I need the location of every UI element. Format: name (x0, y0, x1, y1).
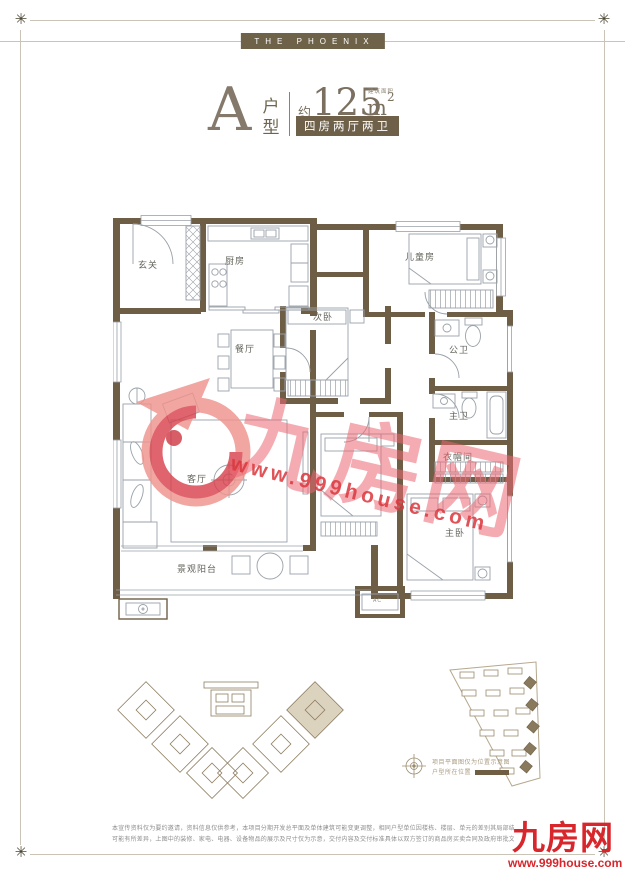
disclaimer-line2: 可能有所差异，上图中的装修、家电、电器、设备物品的展示及尺寸仅为示意，交付内容及… (112, 834, 514, 843)
bed (321, 434, 381, 516)
stool (232, 556, 250, 574)
sink (435, 320, 459, 336)
room-label-living: 客厅 (187, 472, 207, 485)
site-logo: 九房网 (512, 820, 614, 856)
corner-ornament-icon: ✳ (12, 12, 30, 30)
fridge (289, 286, 308, 306)
corner-ornament-icon: ✳ (12, 845, 30, 863)
room-label-entry: 玄关 (138, 258, 158, 271)
tv-console (303, 432, 308, 494)
title-divider (289, 92, 290, 136)
room-label-kids-room: 儿童房 (405, 250, 435, 263)
sofa (123, 404, 151, 522)
brand-badge: THE PHOENIX (240, 33, 384, 49)
compass-icon (402, 754, 426, 778)
building-keyplan (108, 660, 353, 805)
unit-type-letter: A (208, 80, 251, 140)
closet-rail (435, 462, 503, 472)
balcony-table (257, 553, 283, 579)
spec-badge: 四房两厅两卫 (296, 116, 399, 136)
room-label-master-bath: 主卫 (449, 409, 469, 422)
room-label-second-bedroom: 次卧 (313, 310, 333, 323)
unit-type-label: 户型 (262, 96, 280, 139)
room-label-public-bath: 公卫 (449, 343, 469, 356)
flyer-sheet: ✳ ✳ ✳ ✳ THE PHOENIX A 户型 约 125 建筑面积 m 2 … (0, 0, 625, 875)
disclaimer-line1: 本宣传资料仅为要约邀请，资料信息仅供参考，本项目分期开发总平面及单体建筑可能变更… (112, 823, 514, 832)
site-logo-url: www.999house.com (508, 856, 622, 870)
ac-label: AC (373, 598, 382, 604)
siteplan-legend-label: 户型所在位置 (432, 770, 471, 776)
room-label-dining: 餐厅 (235, 342, 255, 355)
room-label-closet: 衣帽间 (443, 450, 473, 463)
siteplan-legend-line2: 户型所在位置 (432, 767, 509, 776)
room-label-kitchen: 厨房 (225, 254, 245, 267)
floorplan: 玄关 厨房 餐厅 次卧 儿童房 公卫 主卫 衣帽间 主卧 客厅 景观阳台 AC (113, 210, 513, 625)
room-label-master-bedroom: 主卧 (445, 526, 465, 539)
stool (290, 556, 308, 574)
room-label-balcony: 景观阳台 (177, 562, 217, 575)
door-arc (435, 354, 459, 378)
corner-ornament-icon: ✳ (595, 12, 613, 30)
armchair (163, 393, 200, 423)
siteplan-map (398, 648, 558, 800)
area-superscript: 2 (387, 90, 395, 104)
shoe-cabinet (186, 226, 200, 300)
unit-location-bar (475, 770, 509, 775)
dining-table (231, 330, 273, 388)
siteplan-legend-line1: 项目平面图仅为位置示意图 (432, 757, 510, 766)
wardrobe (429, 290, 493, 308)
wardrobe (288, 380, 348, 396)
